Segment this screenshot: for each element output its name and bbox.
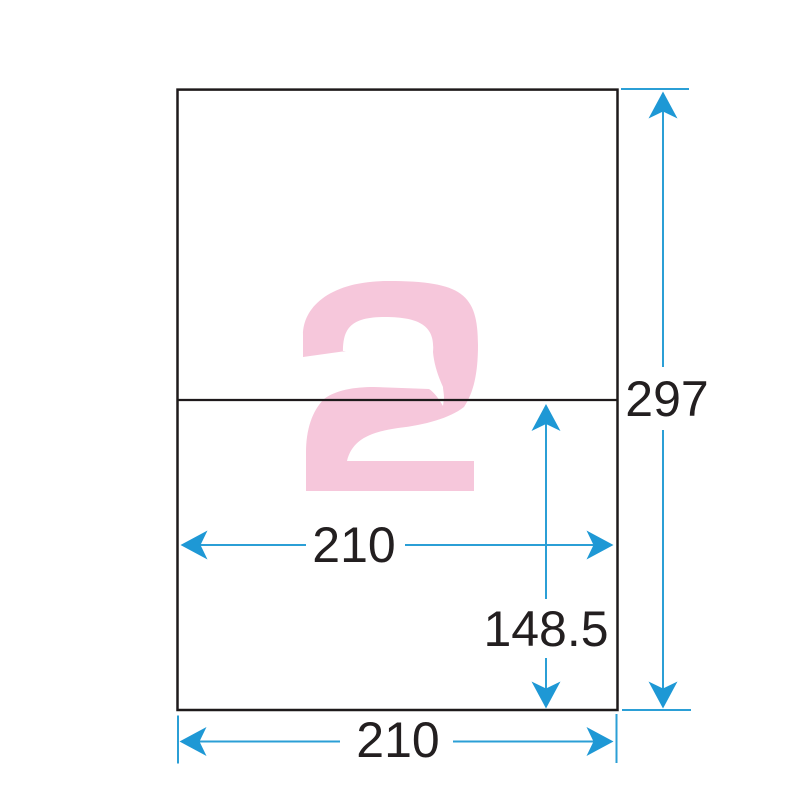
svg-text:210: 210 (312, 517, 395, 573)
svg-text:210: 210 (356, 712, 439, 768)
svg-text:297: 297 (625, 371, 708, 427)
svg-text:148.5: 148.5 (483, 601, 608, 657)
